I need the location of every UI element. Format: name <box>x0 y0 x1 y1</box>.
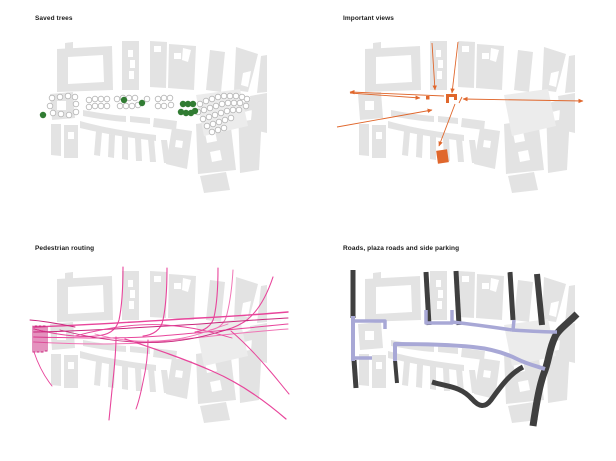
other-tree-dot <box>129 103 135 109</box>
other-tree-dot <box>144 96 150 102</box>
other-tree-dot <box>224 108 230 114</box>
other-tree-dot <box>213 103 219 109</box>
other-tree-dot <box>132 95 138 101</box>
other-tree-dot <box>225 100 231 106</box>
important-views-title: Important views <box>343 15 394 22</box>
other-tree-dot <box>73 109 79 115</box>
other-tree-dot <box>73 101 79 107</box>
other-tree-dot <box>243 103 249 109</box>
other-tree-dot <box>219 101 225 107</box>
other-tree-dot <box>207 105 213 111</box>
other-tree-dot <box>230 107 236 113</box>
other-tree-dot <box>206 114 212 120</box>
other-tree-dot <box>98 103 104 109</box>
other-tree-dot <box>58 111 64 117</box>
saved-tree-dot <box>40 112 46 118</box>
other-tree-dot <box>228 115 234 121</box>
view-point-marker <box>426 96 430 100</box>
other-tree-dot <box>161 103 167 109</box>
view-arrow-line <box>459 97 462 103</box>
other-tree-dot <box>86 97 92 103</box>
other-tree-dot <box>218 110 224 116</box>
road-path <box>456 271 459 325</box>
diagram-sheet: Saved trees Important views Pedestrian r… <box>0 0 616 461</box>
other-tree-dot <box>209 96 215 102</box>
important-views-map <box>308 0 616 230</box>
panel-important-views: Important views <box>308 0 616 230</box>
other-tree-dot <box>212 112 218 118</box>
other-tree-dot <box>155 96 161 102</box>
focus-building-glyph <box>446 94 457 103</box>
plaza-road-path <box>452 322 512 330</box>
roads-title: Roads, plaza roads and side parking <box>343 245 459 252</box>
other-tree-dot <box>237 100 243 106</box>
other-tree-dot <box>98 96 104 102</box>
other-tree-dot <box>210 121 216 127</box>
road-path <box>395 360 397 383</box>
other-tree-dot <box>92 103 98 109</box>
other-tree-dot <box>233 93 239 99</box>
pedestrian-routing-map <box>0 230 308 460</box>
other-tree-dot <box>86 104 92 110</box>
viewpoint-building-marker <box>436 149 449 163</box>
saved-tree-dot <box>139 100 145 106</box>
other-tree-dot <box>236 107 242 113</box>
other-tree-dot <box>227 93 233 99</box>
road-path <box>510 272 513 320</box>
other-tree-dot <box>57 94 63 100</box>
other-tree-dot <box>201 107 207 113</box>
saved-tree-dot <box>190 101 196 107</box>
other-tree-dot <box>104 103 110 109</box>
other-tree-dot <box>244 96 250 102</box>
panel-roads: Roads, plaza roads and side parking <box>308 230 616 461</box>
other-tree-dot <box>104 96 110 102</box>
saved-tree-dot <box>121 97 127 103</box>
other-tree-dot <box>155 103 161 109</box>
other-tree-dot <box>72 94 78 100</box>
other-tree-dot <box>215 94 221 100</box>
other-tree-dot <box>231 100 237 106</box>
other-tree-dot <box>66 112 72 118</box>
other-tree-dot <box>221 93 227 99</box>
other-tree-dot <box>209 129 215 135</box>
other-tree-dot <box>221 125 227 131</box>
other-tree-dot <box>168 102 174 108</box>
other-tree-dot <box>92 96 98 102</box>
view-arrow-line <box>452 42 458 93</box>
other-tree-dot <box>114 96 120 102</box>
roads-map <box>308 230 616 460</box>
other-tree-dot <box>65 93 71 99</box>
other-tree-dot <box>215 127 221 133</box>
other-tree-dot <box>204 123 210 129</box>
basemap-buildings <box>50 271 267 423</box>
other-tree-dot <box>50 110 56 116</box>
saved-trees-title: Saved trees <box>35 15 73 22</box>
other-tree-dot <box>197 101 203 107</box>
panel-pedestrian-routing: Pedestrian routing <box>0 230 308 461</box>
plaza-road-path <box>512 330 557 332</box>
other-tree-dot <box>123 103 129 109</box>
saved-tree-dot <box>192 108 198 114</box>
other-tree-dot <box>203 98 209 104</box>
other-tree-dot <box>222 117 228 123</box>
basemap-buildings <box>50 41 267 193</box>
other-tree-dot <box>167 95 173 101</box>
other-tree-dot <box>216 119 222 125</box>
pedestrian-routing-title: Pedestrian routing <box>35 245 94 252</box>
other-tree-dot <box>47 103 53 109</box>
other-tree-dot <box>161 95 167 101</box>
pedestrian-route-path <box>34 352 52 386</box>
panel-saved-trees: Saved trees <box>0 0 308 230</box>
road-path <box>354 360 356 388</box>
other-tree-dot <box>49 95 55 101</box>
road-path <box>537 274 542 325</box>
other-tree-dot <box>200 116 206 122</box>
saved-trees-map <box>0 0 308 230</box>
other-tree-dot <box>117 103 123 109</box>
